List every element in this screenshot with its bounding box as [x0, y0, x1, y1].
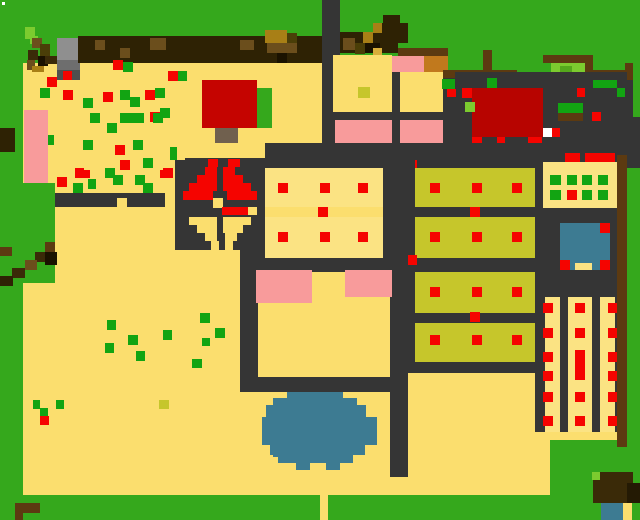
- red-crop-dot: [40, 416, 49, 425]
- windmill-blade: [208, 159, 218, 167]
- red-crop-dot: [543, 352, 553, 362]
- red-crop-dot: [543, 328, 553, 338]
- green-crop-dot: [200, 313, 210, 323]
- road-east-vertical: [390, 373, 408, 477]
- soil-mound: [378, 23, 408, 43]
- windmill-blade: [183, 191, 213, 200]
- sand-edge-southeast: [623, 503, 632, 520]
- red-crop-dot: [160, 170, 168, 178]
- pink-bed-small: [392, 56, 424, 72]
- green-crop-dot: [202, 338, 210, 346]
- green-crop-dot: [105, 343, 114, 353]
- red-crop-dot: [543, 392, 553, 402]
- red-marker: [565, 153, 580, 162]
- windmill-blade: [197, 175, 217, 183]
- dead-branch: [45, 252, 57, 265]
- red-crop-dot: [462, 88, 472, 98]
- red-crop-dot: [575, 392, 585, 402]
- red-crop-dot: [512, 287, 522, 297]
- dirt-corner: [28, 50, 38, 60]
- red-crop-dot: [318, 207, 328, 217]
- soil-patch: [240, 40, 254, 50]
- red-crop-bar: [575, 350, 585, 380]
- green-crop-dot: [178, 71, 187, 81]
- green-crop-dot: [163, 330, 172, 340]
- pond: [326, 463, 340, 470]
- red-crop-dot: [103, 92, 113, 102]
- red-crop-dot: [358, 232, 368, 242]
- pond: [273, 398, 357, 405]
- tree-trunk: [215, 128, 238, 143]
- red-crop-dot: [47, 77, 57, 87]
- red-crop-dot: [408, 255, 417, 265]
- red-crop-dot: [430, 232, 440, 242]
- red-crop-dot: [113, 60, 123, 70]
- orchard-bottom-strip: [537, 432, 617, 440]
- orchard-strip: [545, 297, 560, 432]
- pond: [273, 448, 280, 457]
- red-crop-dot: [168, 71, 178, 81]
- orchard-strip: [600, 297, 615, 432]
- red-crop-dot: [472, 335, 482, 345]
- pink-bed: [335, 120, 392, 143]
- windmill-blade: [223, 167, 235, 175]
- field-southeast: [420, 373, 550, 495]
- soil-patch: [355, 43, 365, 54]
- seed-plot-northeast: [543, 162, 617, 208]
- dirt-corner: [40, 44, 50, 56]
- red-crop-dot: [472, 183, 482, 193]
- green-crop-dot: [442, 79, 455, 89]
- red-crop-dot: [543, 303, 553, 313]
- green-crop-dot: [143, 183, 153, 193]
- red-crop-dot: [472, 232, 482, 242]
- sand-speck: [177, 152, 185, 160]
- green-hedge: [593, 80, 617, 88]
- fence-corner: [15, 503, 40, 513]
- red-crop-dot: [575, 416, 585, 426]
- bed-gap-road: [415, 258, 543, 272]
- fence-corner: [15, 513, 23, 520]
- road-east-vertical: [390, 258, 415, 373]
- windmill-blade-light: [225, 241, 233, 250]
- fence-column-east: [617, 155, 627, 447]
- green-crop-dot: [123, 62, 133, 72]
- windmill-blade: [223, 175, 243, 183]
- light-grass-patch: [592, 472, 600, 480]
- tank-notch: [575, 263, 592, 270]
- green-crop-dot: [83, 140, 93, 150]
- red-crop-dot: [430, 287, 440, 297]
- green-crop-dot: [617, 88, 625, 97]
- red-marker: [585, 153, 615, 162]
- red-crop-dot: [430, 335, 440, 345]
- red-crop-dot: [320, 183, 330, 193]
- house-roof-pink: [256, 270, 312, 303]
- green-crop-dot: [550, 175, 561, 185]
- soil-patch: [277, 53, 287, 63]
- light-green-dot: [465, 102, 475, 112]
- road-west: [55, 193, 165, 207]
- red-crop-dot: [145, 90, 155, 100]
- red-crop-dot: [358, 183, 368, 193]
- windmill-blade-light: [197, 225, 217, 233]
- red-crop-dot: [592, 112, 601, 121]
- dirt-corner: [32, 66, 44, 72]
- water-edge-southeast: [601, 503, 623, 520]
- red-tree-canopy: [202, 80, 257, 128]
- road-vertical-north: [392, 70, 400, 143]
- soil-patch: [373, 23, 382, 33]
- green-crop-dot: [120, 90, 130, 100]
- soil-patch: [267, 43, 297, 53]
- green-crop-dot: [153, 113, 163, 123]
- green-crop-dot: [40, 88, 50, 98]
- red-crop-dot: [512, 183, 522, 193]
- soil-patch: [265, 30, 287, 43]
- green-crop-dot: [33, 400, 40, 409]
- green-crop-dot: [128, 335, 138, 345]
- red-crop-dot: [567, 190, 577, 200]
- soil-patch: [287, 33, 297, 43]
- green-crop-dot: [56, 400, 64, 409]
- windmill-blade: [222, 207, 248, 215]
- green-crop-dot: [192, 359, 202, 368]
- red-crop-dot: [63, 90, 73, 100]
- dirt-corner: [45, 56, 57, 64]
- red-crop-dot: [430, 183, 440, 193]
- red-crop-dot: [575, 303, 585, 313]
- green-crop-dot: [107, 320, 116, 330]
- red-crop-dot: [600, 260, 610, 270]
- fence-rail: [398, 48, 448, 56]
- dark-divider: [535, 160, 543, 432]
- pond: [270, 445, 365, 455]
- dead-branch: [0, 276, 13, 286]
- red-crop-dot: [600, 223, 610, 233]
- green-crop-dot: [83, 98, 93, 108]
- green-crop-dot: [73, 183, 83, 193]
- soil-patch: [343, 38, 355, 50]
- red-crop-dot: [552, 128, 560, 137]
- windmill-blade: [205, 167, 217, 175]
- green-crop-dot: [143, 158, 153, 168]
- windmill-blade: [223, 183, 251, 191]
- pond: [266, 405, 366, 417]
- green-crop-dot: [598, 190, 608, 200]
- plot-north-a: [333, 55, 392, 112]
- dark-log: [0, 128, 15, 152]
- green-crop-bar: [120, 113, 144, 123]
- dead-branch: [25, 260, 37, 270]
- green-crop-dot: [215, 328, 225, 338]
- green-crop-dot: [550, 190, 561, 200]
- olive-dot: [159, 400, 169, 409]
- green-crop-dot: [48, 135, 54, 145]
- red-crop-dot: [447, 89, 456, 97]
- sand-speck: [248, 207, 257, 215]
- dead-branch: [0, 247, 12, 256]
- red-crop-dot: [575, 328, 585, 338]
- green-crop-dot: [130, 97, 140, 107]
- gold-speck: [373, 48, 382, 55]
- red-crop-dot: [120, 160, 130, 170]
- soil-patch: [120, 48, 130, 58]
- pink-bed-west: [24, 110, 48, 183]
- pond: [296, 463, 310, 470]
- green-crop-dot: [567, 175, 577, 185]
- dead-branch: [45, 242, 55, 252]
- dead-branch: [12, 268, 25, 278]
- olive-dot: [358, 87, 370, 98]
- bed-gap-road: [415, 362, 550, 373]
- fence-rail: [558, 113, 583, 121]
- red-crop-dot: [320, 232, 330, 242]
- green-crop-dot: [88, 179, 96, 189]
- red-crop-dot: [278, 183, 288, 193]
- green-crop-dot: [136, 351, 145, 361]
- pond: [262, 417, 377, 445]
- green-crop-dot: [170, 147, 177, 160]
- house-roof-pink: [345, 270, 392, 297]
- red-crop-dot: [63, 71, 72, 80]
- path-gap-south: [320, 495, 328, 520]
- windmill-blade: [189, 183, 217, 191]
- red-crop-dot: [512, 335, 522, 345]
- soil-patch: [95, 40, 105, 50]
- soil-patch: [363, 32, 373, 43]
- red-crop-dot: [560, 260, 570, 270]
- windmill-blade-light: [225, 233, 237, 241]
- windmill-blade: [228, 159, 240, 167]
- red-crop-dot: [472, 287, 482, 297]
- windmill-blade-light: [223, 225, 243, 233]
- red-crop-dot: [543, 371, 553, 381]
- red-crop-dot: [57, 177, 67, 187]
- green-crop-dot: [598, 175, 608, 185]
- white-speck: [2, 2, 5, 5]
- grass-strip-east: [633, 80, 640, 117]
- chimney-stone-mid: [57, 60, 80, 70]
- green-crop-dot: [90, 113, 100, 123]
- green-crop-dot: [582, 190, 592, 200]
- green-crop-dot: [582, 175, 592, 185]
- red-crop-dot: [278, 232, 288, 242]
- red-crop-dot: [80, 170, 90, 178]
- white-animal: [543, 128, 552, 137]
- green-crop-dot: [155, 88, 165, 98]
- fence-rail: [543, 55, 593, 63]
- red-crop-dot: [512, 232, 522, 242]
- green-crop-dot: [133, 140, 143, 150]
- red-crop-dot: [115, 145, 125, 155]
- red-crop-dot: [470, 207, 480, 217]
- road-between-beds: [383, 143, 415, 272]
- farm-map-canvas[interactable]: [0, 0, 640, 520]
- red-crop-dot: [470, 312, 480, 322]
- chimney-stone: [57, 38, 80, 60]
- windmill-blade-light: [189, 217, 217, 225]
- soil-patch: [150, 38, 166, 50]
- road-notch: [117, 198, 127, 207]
- tree-green-side: [257, 88, 272, 128]
- windmill-blade-light: [223, 217, 251, 225]
- road-south-horizontal: [240, 377, 408, 392]
- windmill-blade: [227, 191, 257, 200]
- red-barn: [472, 88, 543, 137]
- green-crop-dot: [107, 123, 117, 133]
- dirt-mound-dark: [627, 483, 640, 503]
- windmill-blade-light: [211, 241, 219, 250]
- green-crop-dot: [113, 175, 123, 185]
- green-hedge: [558, 103, 583, 113]
- pond: [278, 455, 353, 463]
- green-crop-dot: [487, 78, 497, 88]
- windmill-blade-light: [205, 233, 217, 241]
- red-crop-dot: [577, 88, 585, 97]
- red-crop-dot: [543, 416, 553, 426]
